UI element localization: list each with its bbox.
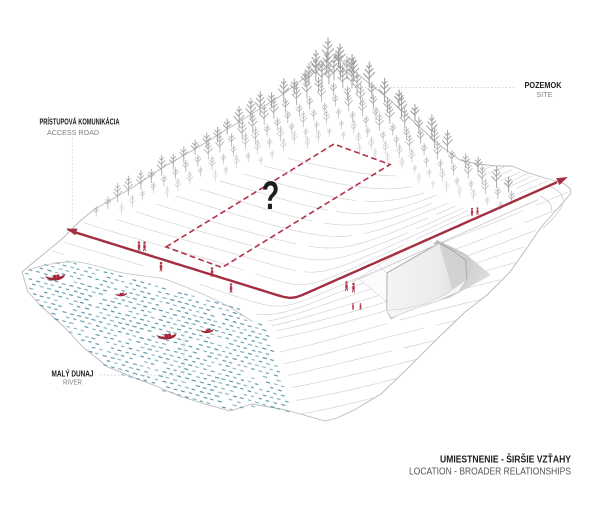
svg-text:ACCESS ROAD: ACCESS ROAD (47, 128, 100, 137)
svg-text:POZEMOK: POZEMOK (525, 80, 563, 90)
svg-text:?: ? (262, 173, 280, 218)
svg-text:UMIESTNENIE - ŠIRŠIE VZŤAHY: UMIESTNENIE - ŠIRŠIE VZŤAHY (440, 453, 571, 466)
svg-text:LOCATION - BROADER RELATIONSHI: LOCATION - BROADER RELATIONSHIPS (409, 467, 571, 478)
svg-text:PRÍSTUPOVÁ KOMUNIKÁCIA: PRÍSTUPOVÁ KOMUNIKÁCIA (40, 117, 120, 127)
svg-text:RIVER: RIVER (63, 378, 82, 387)
svg-text:SITE: SITE (537, 90, 553, 99)
